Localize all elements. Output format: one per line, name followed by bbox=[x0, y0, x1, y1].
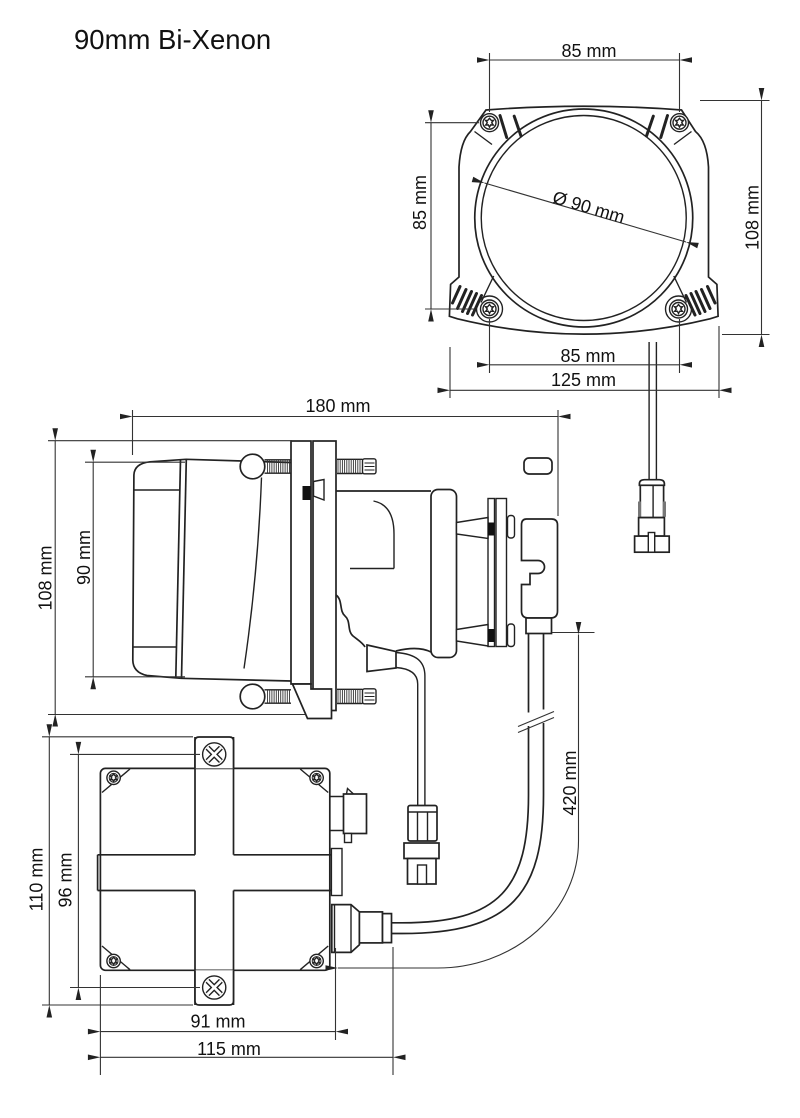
svg-text:110 mm: 110 mm bbox=[27, 848, 47, 912]
svg-text:420 mm: 420 mm bbox=[560, 750, 580, 815]
svg-text:85 mm: 85 mm bbox=[561, 41, 616, 61]
svg-text:115 mm: 115 mm bbox=[197, 1039, 261, 1059]
svg-text:180 mm: 180 mm bbox=[305, 396, 370, 416]
svg-text:85 mm: 85 mm bbox=[410, 175, 430, 230]
svg-text:125 mm: 125 mm bbox=[551, 370, 616, 390]
svg-text:90mm Bi-Xenon: 90mm Bi-Xenon bbox=[74, 24, 271, 55]
svg-text:85 mm: 85 mm bbox=[560, 346, 615, 366]
svg-text:96 mm: 96 mm bbox=[56, 852, 76, 907]
svg-text:91 mm: 91 mm bbox=[190, 1012, 245, 1032]
svg-text:108 mm: 108 mm bbox=[36, 545, 56, 610]
svg-text:90 mm: 90 mm bbox=[74, 530, 94, 585]
svg-text:108 mm: 108 mm bbox=[743, 185, 763, 250]
